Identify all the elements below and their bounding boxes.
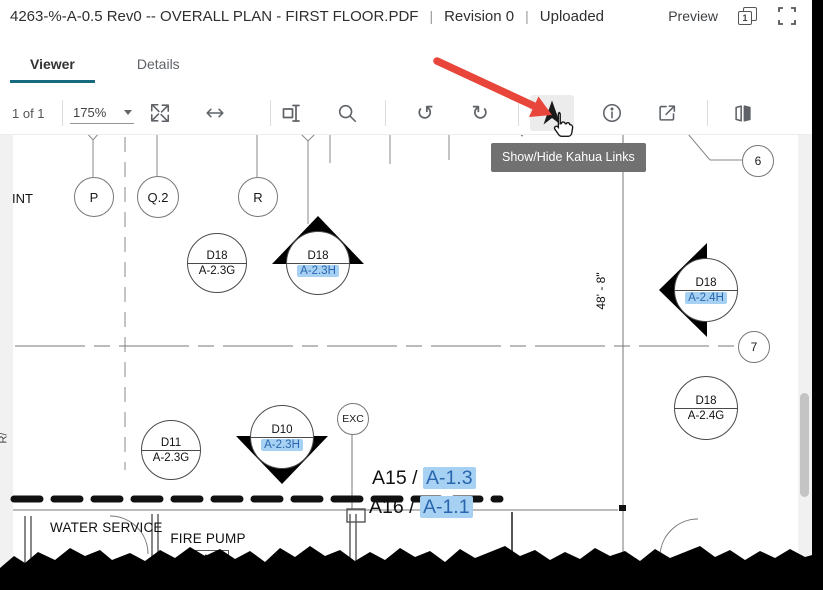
status-label: Uploaded <box>540 8 604 25</box>
text-select-icon[interactable] <box>281 92 305 134</box>
detail-marker-d18-a24g: D18 A-2.4G <box>674 376 738 440</box>
room-number-1404: 1404 <box>187 550 229 567</box>
kahua-link-a23h[interactable]: A-2.3H <box>297 265 339 277</box>
kahua-link-a24h[interactable]: A-2.4H <box>685 292 727 304</box>
document-header: 4263-%-A-0.5 Rev0 -- OVERALL PLAN - FIRS… <box>0 0 812 30</box>
separator: | <box>429 8 433 24</box>
callout-a15: A15 / A-1.3 <box>372 467 476 490</box>
room-label-water-service: WATER SERVICE <box>50 520 140 537</box>
info-icon[interactable] <box>600 92 624 134</box>
compare-icon[interactable] <box>731 92 755 134</box>
detail-marker-d18-a23g: D18 A-2.3G <box>187 233 247 293</box>
rotate-left-icon[interactable]: ↺ <box>413 92 437 134</box>
kahua-links-icon[interactable] <box>530 95 574 131</box>
grid-bubble-7: 7 <box>738 331 770 363</box>
toolbar-divider <box>707 100 708 126</box>
revision-label: Revision 0 <box>444 8 514 25</box>
kahua-links-tooltip: Show/Hide Kahua Links <box>491 143 646 172</box>
preview-button[interactable]: Preview <box>668 8 718 24</box>
tab-viewer[interactable]: Viewer <box>10 50 95 83</box>
kahua-link-a13[interactable]: A-1.3 <box>423 467 476 489</box>
torn-right-edge <box>812 0 823 590</box>
viewer-toolbar: 1 of 1 175% ↺ ↻ <box>0 92 812 135</box>
exc-bubble: EXC <box>337 403 369 435</box>
kahua-document-viewer: { "header": { "title": "4263-%-A-0.5 Rev… <box>0 0 823 590</box>
edge-text-int: INT <box>12 191 33 206</box>
vertical-scrollbar-thumb[interactable] <box>800 393 809 497</box>
search-icon[interactable] <box>335 92 359 134</box>
kahua-link-a11[interactable]: A-1.1 <box>420 496 473 518</box>
torn-bottom-edge <box>0 540 823 590</box>
tab-bar: Viewer Details <box>0 48 812 83</box>
chevron-down-icon <box>124 110 132 115</box>
fullscreen-icon[interactable] <box>778 7 796 25</box>
section-marker-d10-a23h: D10 A-2.3H <box>250 405 314 469</box>
room-label-fire-pump: FIRE PUMP <box>160 531 256 548</box>
zoom-level-select[interactable]: 175% <box>70 102 134 124</box>
edge-text-rotated: R/ <box>0 433 10 444</box>
grid-bubble-6: 6 <box>742 145 774 177</box>
preview-pages-icon[interactable]: 1 <box>738 7 758 26</box>
vertical-scrollbar-track[interactable] <box>798 128 812 590</box>
callout-a16: A16 / A-1.1 <box>369 496 473 519</box>
kahua-link-d10-a23h[interactable]: A-2.3H <box>261 439 303 451</box>
tab-details[interactable]: Details <box>117 50 200 83</box>
expand-icon[interactable] <box>148 92 172 134</box>
fit-width-icon[interactable] <box>203 92 227 134</box>
pages-count-badge: 1 <box>738 11 752 25</box>
toolbar-divider <box>518 100 519 126</box>
document-title: 4263-%-A-0.5 Rev0 -- OVERALL PLAN - FIRS… <box>10 8 418 25</box>
grid-bubble-r: R <box>238 177 278 217</box>
grid-bubble-q2: Q.2 <box>137 176 179 218</box>
dimension-label: 48' - 8" <box>594 263 608 319</box>
page-indicator: 1 of 1 <box>12 92 45 134</box>
zoom-level-value: 175% <box>70 105 106 120</box>
toolbar-divider <box>270 100 271 126</box>
open-external-icon[interactable] <box>655 92 679 134</box>
grid-bubble-p: P <box>74 177 114 217</box>
detail-marker-d11-a23g: D11 A-2.3G <box>141 420 201 480</box>
section-marker-d18-a23h: D18 A-2.3H <box>286 231 350 295</box>
separator: | <box>525 8 529 24</box>
toolbar-divider <box>62 100 63 126</box>
section-marker-d18-a24h: D18 A-2.4H <box>674 258 738 322</box>
rotate-right-icon[interactable]: ↻ <box>468 92 492 134</box>
toolbar-divider <box>385 100 386 126</box>
